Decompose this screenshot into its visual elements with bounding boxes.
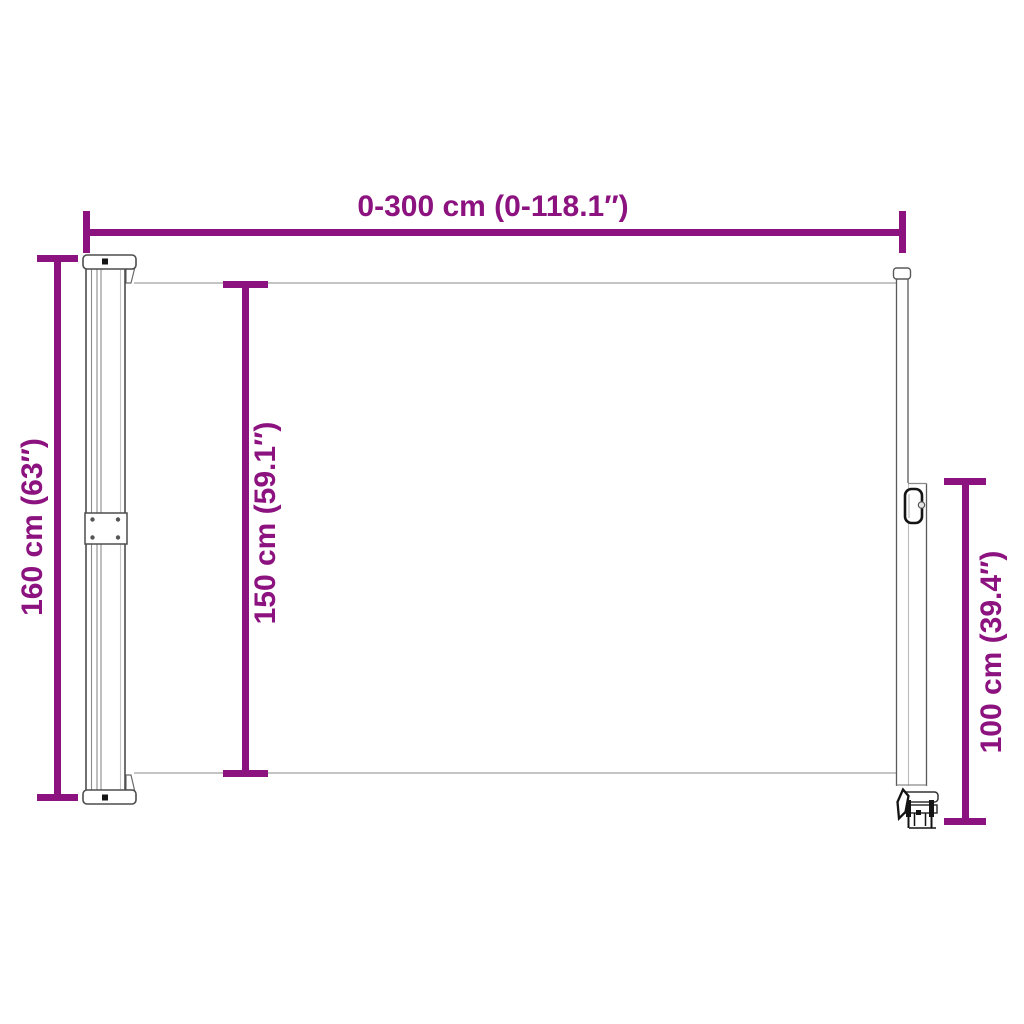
cassette-bottom-pin	[102, 795, 108, 801]
dimension-line-height-pole	[962, 481, 969, 822]
support-pole	[894, 268, 939, 828]
mount-screw	[116, 535, 120, 539]
dimension-line-height-fabric	[242, 284, 249, 774]
pole-foot	[897, 785, 939, 828]
dimension-height-pole-top-cap	[944, 478, 986, 485]
dimension-label-width: 0-300 cm (0-118.1″)	[357, 190, 628, 224]
wall-mount-plate	[85, 513, 127, 544]
dimension-height-total-top-cap	[37, 255, 78, 262]
mount-screw	[116, 517, 120, 521]
dimension-height-total-bottom-cap	[37, 794, 78, 801]
diagram-canvas: 0-300 cm (0-118.1″) 160 cm (63″) 150 cm …	[0, 0, 1024, 1024]
awning-cassette	[83, 255, 136, 804]
cassette-bottom-side-piece	[126, 775, 135, 790]
dimension-width-left-cap	[83, 211, 90, 253]
dimension-line-width	[86, 229, 902, 236]
dimension-label-height-fabric: 150 cm (59.1″)	[249, 422, 283, 625]
pole-top-cap	[894, 268, 911, 279]
dimension-height-fabric-top-cap	[223, 281, 268, 288]
cassette-top-pin	[102, 259, 108, 265]
awning-illustration	[0, 0, 1024, 1024]
mount-screw	[90, 517, 94, 521]
foot-bolt	[929, 800, 934, 817]
dimension-height-pole-bottom-cap	[944, 818, 986, 825]
cassette-top-side-piece	[126, 269, 135, 283]
dimension-label-height-pole: 100 cm (39.4″)	[975, 551, 1009, 754]
dimension-height-fabric-bottom-cap	[223, 770, 268, 777]
cassette-top-cap	[83, 255, 136, 269]
foot-center-pin	[916, 810, 921, 815]
mount-screw	[90, 535, 94, 539]
dimension-label-height-total: 160 cm (63″)	[16, 438, 50, 616]
dimension-width-right-cap	[899, 211, 906, 253]
pole-handle	[905, 489, 925, 523]
dimension-line-height-total	[54, 258, 61, 798]
cassette-bottom-cap	[83, 790, 136, 804]
